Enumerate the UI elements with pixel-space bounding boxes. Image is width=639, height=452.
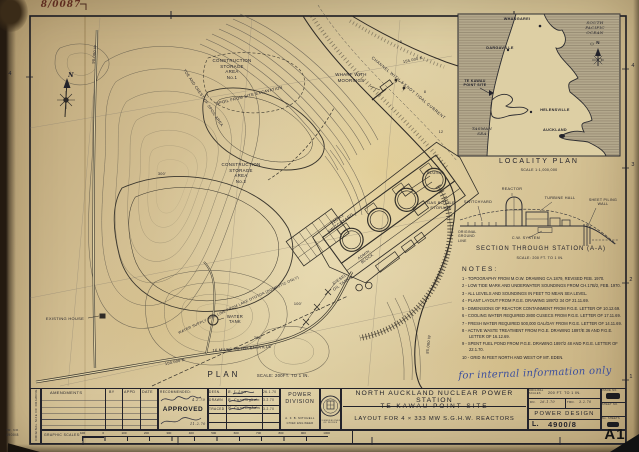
side-strip-text: ORIGINAL SIZE OF DRAWING [34, 387, 38, 443]
tr-number-label: TR. NO. [6, 428, 30, 432]
scale-tick-label: 100 [122, 431, 127, 435]
scale-tick-label: 200 [144, 431, 149, 435]
personnel-role: DRAWN [209, 398, 225, 402]
col-date: DATE [142, 390, 158, 394]
trd-label: TRD. [567, 400, 579, 404]
contours-south-spur [257, 295, 420, 380]
sounding-mark: 8 [420, 90, 430, 94]
drawing-sheet: 8/0087 CONSTRUCTION STORAGE AREA No.1 CO… [0, 0, 639, 452]
contours-northwest-knoll [55, 44, 109, 85]
tr-number-value: 4900/8 [6, 433, 32, 437]
scales-rule [528, 408, 601, 409]
section-label-ground-line: ORIGINAL GROUND LINE [458, 230, 484, 243]
contours-coastal-ridge [200, 14, 378, 216]
scale-bar-solid-segment [82, 436, 104, 438]
division-name: POWER DIVISION [282, 392, 318, 406]
drawing-geometry [0, 0, 639, 452]
recommended-date: 4.2.70 [192, 398, 208, 402]
notes-block: NOTES: 1 - TOPOGRAPHY FROM M.O.W. DRAWIN… [462, 266, 622, 361]
margin-number-right: 2 [626, 277, 636, 284]
locality-label-whangarei: WHANGAREI [496, 17, 538, 22]
office-name: POWER DESIGN [529, 411, 600, 417]
scale-tick-label: 900 [301, 431, 306, 435]
scale-numbers: 100 0 100 200 300 400 500 600 700 800 90… [80, 431, 330, 435]
sheet-label: SHEET NO. [602, 403, 625, 406]
contour-label-200: 200' [250, 336, 266, 341]
label-water-tank: WATER TANK [222, 314, 248, 325]
personnel-rule [208, 422, 280, 423]
scale-tick-label: 0 [102, 431, 104, 435]
crest-caption: COMMISSIONER OF WORKS [318, 420, 343, 424]
contour-label-300: 300' [154, 172, 170, 177]
note-item: 8 - ACTIVE WASTE TREATMENT FROM P.G.E. D… [462, 328, 622, 340]
label-sluice: SLUICE [420, 170, 450, 175]
note-item: 9 - SPENT FUEL POND FROM P.G.E. DRAWING … [462, 341, 622, 353]
personnel-name: R. J. Law [228, 390, 261, 394]
personnel-name: R. Cunningham [228, 398, 261, 402]
scales-divider [565, 398, 566, 408]
locality-scale: SCALE 1:1,000,000 [506, 168, 572, 172]
personnel-date: 26.1.70 [263, 390, 279, 394]
division-officer-title: CHIEF ENGINEER [281, 422, 319, 425]
section-label-cw-system: C.W. SYSTEM [506, 236, 546, 241]
scale-tick-label: 1000 [323, 431, 330, 435]
section-label-turbine-hall: TURBINE HALL [538, 196, 582, 201]
scale-tick-label: 100 [80, 431, 85, 435]
personnel-date: 3.2.70 [263, 398, 279, 402]
sheet-size-mark: A1 [600, 426, 630, 445]
sounding-mark: 12 [436, 130, 446, 134]
amendments-divider [140, 388, 141, 430]
approved-date: 11.2.70 [190, 422, 208, 426]
recommended-label: RECOMMENDED: [160, 390, 206, 394]
section-label-sheet-piling: SHEET PILING WALL [586, 198, 620, 207]
note-item: 10 - GRID IN FEET NORTH AND WEST OF MT. … [462, 355, 622, 361]
sounding-mark: 5 [396, 40, 406, 44]
section-label-switchyard: SWITCHYARD [456, 200, 500, 205]
notes-heading: NOTES: [462, 266, 622, 273]
label-wharf: WHARF WITH MOORINGS [330, 72, 372, 83]
locality-compass-label: N [594, 40, 602, 46]
original-scales-label: ORIGINAL SCALES [529, 389, 547, 395]
series-letter: L. [532, 421, 542, 428]
scale-tick-label: 800 [278, 431, 283, 435]
locality-label-tasman: TASMAN SEA [466, 126, 498, 136]
scale-tick-label: 600 [234, 431, 239, 435]
personnel-name: N. Cunningham [228, 406, 261, 410]
section-label-reactor: REACTOR [496, 187, 528, 192]
layout-title: LAYOUT FOR 4 × 333 MW S.G.H.W. REACTORS [343, 416, 526, 422]
personnel-date: 3.2.70 [263, 407, 279, 411]
contour-label-100: 100' [290, 302, 306, 307]
plan-title: PLAN [204, 370, 244, 380]
scale-tick-label: 700 [256, 431, 261, 435]
site-title: TE KAWAU POINT SITE [343, 403, 526, 410]
scale-tick-label: 500 [211, 431, 216, 435]
personnel-role: DESN. [209, 390, 225, 394]
locality-label-site: TE KAWAU POINT SITE [458, 79, 492, 88]
contours-west-hill [88, 46, 259, 328]
scale-bar [82, 436, 328, 441]
amendments-header: AMENDMENTS [50, 390, 100, 395]
dn-value: 26.1.70 [540, 400, 562, 404]
scale-tick-label: 300 [166, 431, 171, 435]
amendments-divider [105, 388, 106, 430]
north-arrow-label: N [66, 72, 76, 80]
personnel-divider [226, 388, 227, 430]
plan-scale: SCALE: 200FT. TO 1 IN. [248, 373, 318, 378]
locality-label-pacific: SOUTH PACIFIC OCEAN [576, 20, 614, 35]
trd-value: 3.2.70 [579, 400, 599, 404]
issue-label: ISSUE NO. [602, 389, 625, 392]
issue-mark [606, 393, 620, 399]
locality-label-helensville: HELENSVILLE [532, 108, 578, 113]
label-existing-house: EXISTING HOUSE [40, 316, 90, 321]
label-construction-area-2: CONSTRUCTION STORAGE AREA No.2 [214, 162, 268, 184]
approved-label: APPROVED [159, 406, 207, 413]
note-item: 6 - COOLING WATER REQUIRED 2800 CUSECS F… [462, 313, 622, 319]
note-item: 7 - FRESH WATER REQUIRED 500,000 GAL/DAY… [462, 321, 622, 327]
personnel-rule [208, 413, 280, 414]
sheets-label: No. SHEETS [602, 417, 625, 420]
section-scale: SCALE: 200 FT. TO 1 IN. [500, 256, 580, 260]
margin-number-right: 4 [628, 63, 638, 70]
note-item: 3 - ALL LEVELS AND SOUNDINGS IN FEET TO … [462, 291, 622, 297]
original-scales-value: 200 FT. TO 1 IN. [548, 391, 600, 395]
label-construction-area-1: CONSTRUCTION STORAGE AREA No.1 [206, 58, 258, 80]
margin-number-left: 4 [5, 71, 15, 78]
section-title: SECTION THROUGH STATION (A-A) [466, 246, 616, 254]
amendments-divider [122, 388, 123, 430]
col-by: BY [109, 390, 121, 394]
col-appd: APPD [124, 390, 140, 394]
locality-label-auckland: AUCKLAND [536, 128, 574, 133]
drawing-number: 4900/8 [548, 420, 598, 429]
dn-label: DN. [530, 400, 540, 404]
note-item: 5 - DIMENSIONS OF REACTOR CONTAINMENT FR… [462, 306, 622, 312]
file-number: 8/0087 [38, 0, 84, 11]
scale-tick-label: 400 [189, 431, 194, 435]
note-item: 2 - LOW TIDE MARK AND UNDERWATER SOUNDIN… [462, 283, 622, 289]
division-officer-name: A. F. B. MITCHELL [281, 417, 319, 420]
graphic-scales-label: GRAPHIC SCALES: [44, 433, 84, 437]
margin-number-right: 3 [628, 162, 638, 169]
locality-label-dargaville: DARGAVILLE [478, 46, 522, 51]
margin-number-right: 1 [626, 374, 636, 381]
strip-divider [352, 430, 353, 444]
note-item: 1 - TOPOGRAPHY FROM M.O.W. DRAWING CA.18… [462, 276, 622, 282]
locality-title: LOCALITY PLAN [494, 158, 584, 167]
personnel-role: TRACED [209, 407, 225, 411]
note-item: 4 - PLANT LAYOUT FROM P.G.E. DRAWING 189… [462, 298, 622, 304]
